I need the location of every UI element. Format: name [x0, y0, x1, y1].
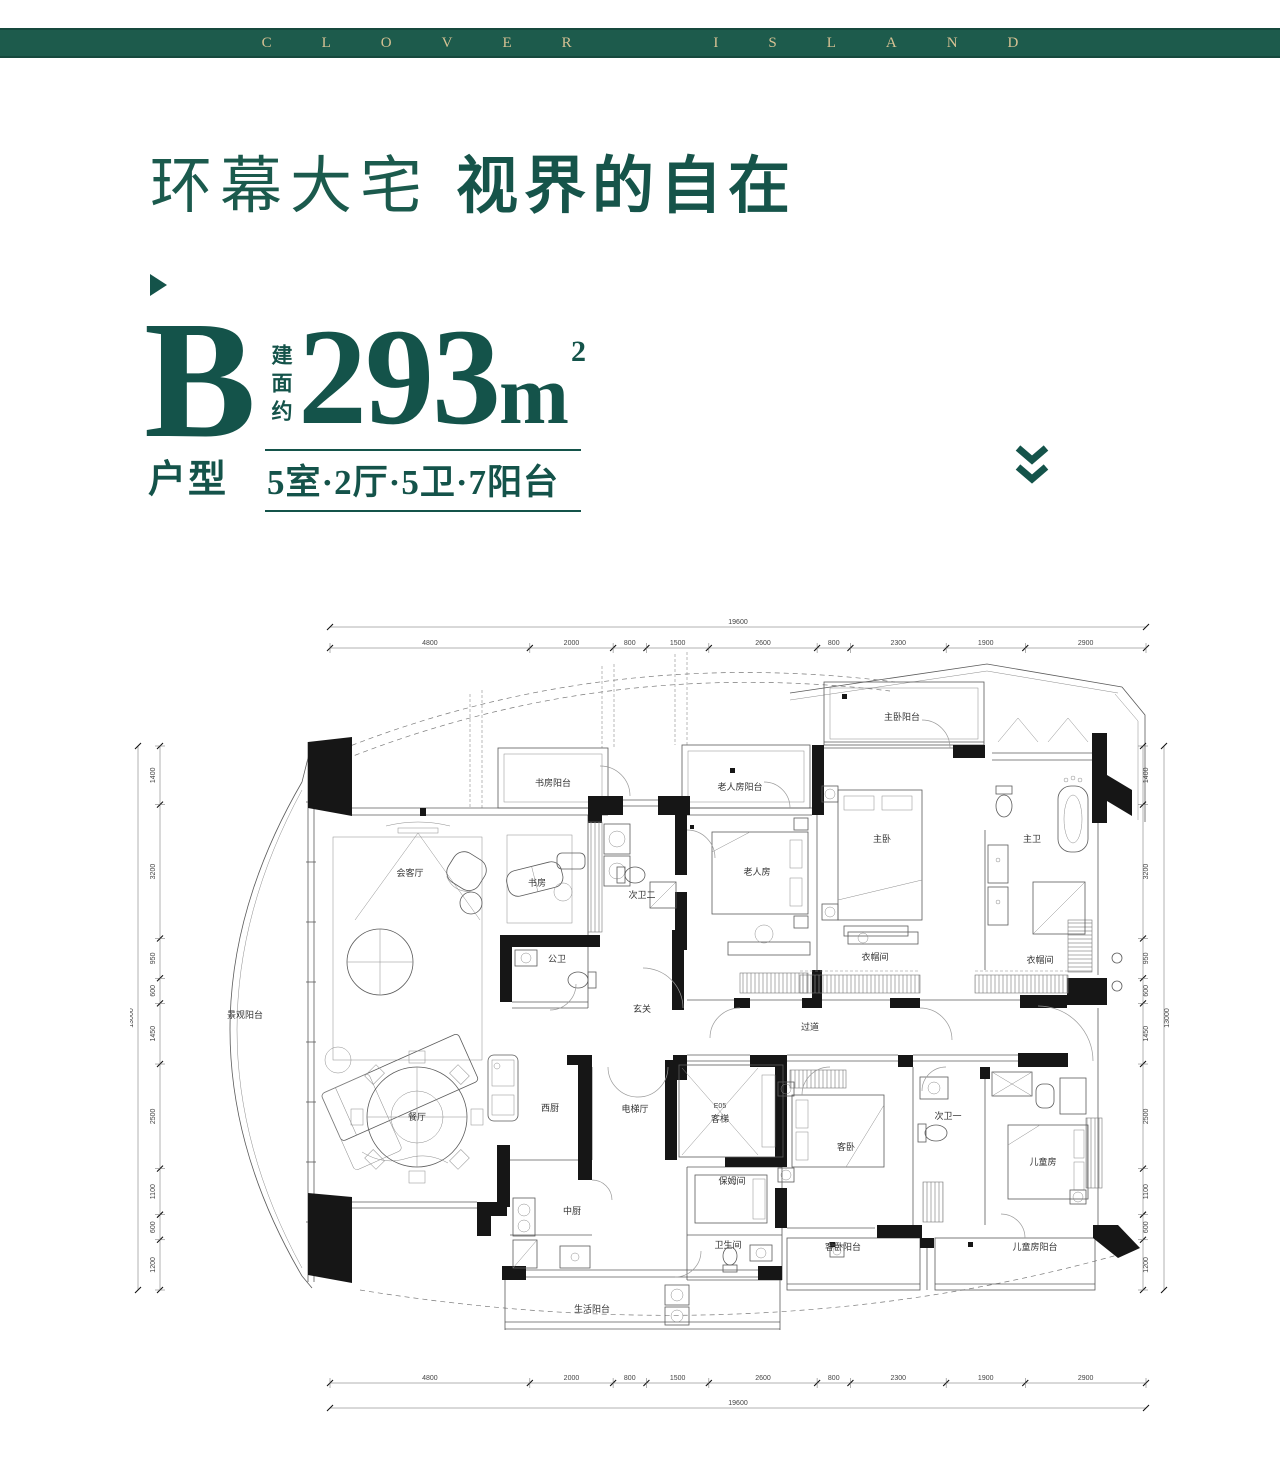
room-label: 儿童房阳台 — [1012, 1241, 1057, 1252]
room-label: 老人房 — [743, 866, 770, 877]
svg-text:1900: 1900 — [978, 1375, 994, 1382]
brand-name: CLOVER ISLAND — [212, 35, 1069, 52]
svg-text:2000: 2000 — [564, 1375, 580, 1382]
room-label: 儿童房 — [1029, 1156, 1056, 1167]
unit-type-label: 户型 — [148, 448, 228, 503]
room-label: 景观阳台 — [227, 1009, 263, 1020]
room-label: 老人房阳台 — [717, 781, 762, 792]
svg-text:13000: 13000 — [130, 1008, 135, 1028]
room-label: 会客厅 — [396, 867, 423, 878]
layout-text: 5室·2厅·5卫·7阳台 — [267, 454, 581, 505]
layout-summary: 5室·2厅·5卫·7阳台 — [265, 449, 581, 512]
svg-text:2000: 2000 — [564, 640, 580, 647]
svg-text:1500: 1500 — [670, 1375, 686, 1382]
room-label: 主卫 — [1023, 833, 1041, 844]
svg-text:600: 600 — [150, 985, 157, 997]
title-light: 环幕大宅 — [150, 152, 430, 221]
room-label: 主卧阳台 — [884, 711, 920, 722]
svg-text:2600: 2600 — [755, 640, 771, 647]
area-prefix: 建面约 — [265, 344, 295, 444]
room-label: 餐厅 — [408, 1111, 426, 1122]
flyer-page: CLOVER ISLAND 环幕大宅视界的自在 B 户型 建面约 293 m 2… — [0, 0, 1280, 1482]
svg-text:19600: 19600 — [728, 619, 748, 626]
area-superscript: 2 — [571, 335, 586, 369]
room-label: 书房阳台 — [535, 777, 571, 788]
svg-text:950: 950 — [1143, 952, 1150, 964]
svg-text:1200: 1200 — [1143, 1257, 1150, 1273]
svg-text:1450: 1450 — [150, 1026, 157, 1042]
svg-text:4800: 4800 — [422, 640, 438, 647]
floor-plan: 景观阳台 会客厅 书房 书房阳台 次卫二 公卫 玄关 老人房阳台 老人房 主卧阳… — [130, 590, 1170, 1450]
svg-text:3200: 3200 — [150, 864, 157, 880]
page-title: 环幕大宅视界的自在 — [150, 156, 796, 218]
elevator-label: 客梯 — [711, 1113, 729, 1124]
room-label: 衣帽间 — [861, 951, 888, 962]
svg-text:1100: 1100 — [150, 1184, 157, 1199]
svg-text:1100: 1100 — [1143, 1184, 1150, 1199]
svg-text:800: 800 — [624, 640, 636, 647]
svg-text:2300: 2300 — [890, 1375, 906, 1382]
svg-text:1400: 1400 — [1143, 767, 1150, 783]
svg-text:800: 800 — [828, 640, 840, 647]
room-label: 西厨 — [541, 1103, 559, 1113]
svg-text:800: 800 — [828, 1375, 840, 1382]
walls-thin — [333, 682, 1098, 1330]
svg-text:950: 950 — [150, 952, 157, 964]
room-label: 公卫 — [548, 954, 566, 964]
svg-text:4800: 4800 — [422, 1375, 438, 1382]
room-label: 客卧阳台 — [825, 1241, 861, 1252]
brand-bar: CLOVER ISLAND — [0, 28, 1280, 58]
svg-text:2600: 2600 — [755, 1375, 771, 1382]
svg-text:19600: 19600 — [728, 1400, 748, 1407]
room-label: 衣帽间 — [1026, 954, 1053, 965]
room-label: 卫生间 — [714, 1239, 741, 1250]
room-label: 书房 — [528, 877, 546, 888]
svg-text:2500: 2500 — [1143, 1108, 1150, 1124]
room-label: 过道 — [801, 1021, 819, 1032]
room-label: 生活阳台 — [574, 1303, 610, 1314]
svg-text:600: 600 — [1143, 985, 1150, 997]
dimension-chains: 4800200080015002600800230019002900196004… — [130, 619, 1170, 1411]
svg-text:1450: 1450 — [1143, 1026, 1150, 1042]
room-label: 玄关 — [633, 1003, 651, 1014]
svg-text:2500: 2500 — [150, 1108, 157, 1124]
area-figure: 293 m 2 — [298, 308, 584, 446]
title-heavy: 视界的自在 — [456, 152, 796, 221]
unit-letter: B — [144, 296, 256, 464]
svg-text:600: 600 — [150, 1221, 157, 1233]
svg-text:2300: 2300 — [890, 640, 906, 647]
double-chevron-down-icon — [1012, 444, 1052, 490]
svg-text:1400: 1400 — [150, 767, 157, 783]
room-label: 中厨 — [563, 1205, 581, 1216]
svg-text:600: 600 — [1143, 1221, 1150, 1233]
svg-text:2900: 2900 — [1078, 1375, 1094, 1382]
svg-text:2900: 2900 — [1078, 640, 1094, 647]
svg-text:1900: 1900 — [978, 640, 994, 647]
svg-text:1500: 1500 — [670, 640, 686, 647]
svg-text:1200: 1200 — [150, 1257, 157, 1273]
room-label: 电梯厅 — [621, 1103, 648, 1114]
elevator-code: E05 — [714, 1103, 727, 1110]
svg-text:3200: 3200 — [1143, 864, 1150, 880]
svg-text:13000: 13000 — [1164, 1008, 1170, 1028]
room-label: 保姆间 — [718, 1175, 745, 1186]
area-unit: m — [499, 354, 569, 438]
room-label: 客卧 — [837, 1141, 855, 1152]
room-label: 次卫二 — [628, 889, 655, 900]
room-label: 次卫一 — [934, 1110, 961, 1121]
svg-text:800: 800 — [624, 1375, 636, 1382]
area-value: 293 — [298, 308, 499, 446]
room-label: 主卧 — [873, 833, 891, 844]
